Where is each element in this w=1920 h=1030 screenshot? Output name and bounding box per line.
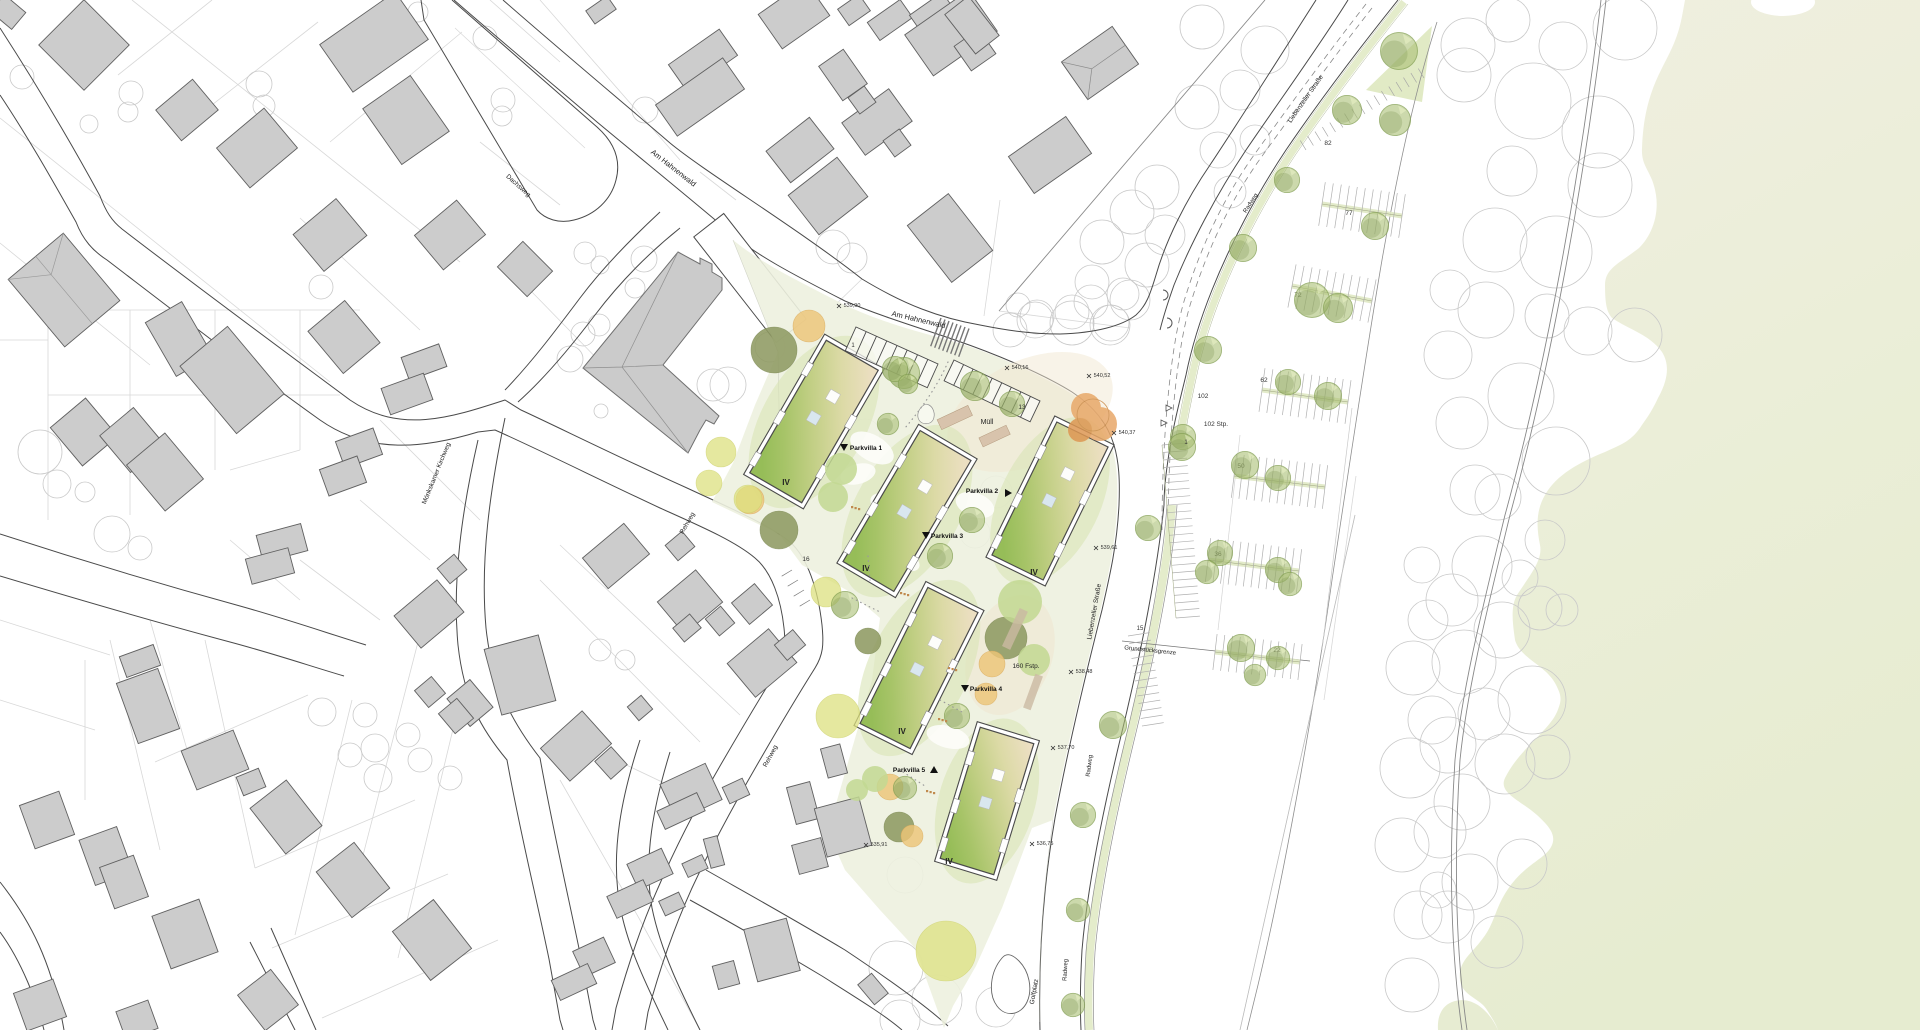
svg-text:Parkvilla 2: Parkvilla 2 (966, 488, 999, 495)
svg-text:538,48: 538,48 (1076, 669, 1093, 675)
svg-text:Parkvilla 4: Parkvilla 4 (970, 686, 1003, 693)
svg-text:102: 102 (1198, 393, 1209, 400)
svg-text:16: 16 (802, 556, 810, 563)
svg-text:102 Stp.: 102 Stp. (1204, 421, 1228, 428)
svg-text:62: 62 (1260, 377, 1268, 384)
svg-text:Parkvilla 5: Parkvilla 5 (893, 767, 926, 774)
svg-text:Parkvilla 3: Parkvilla 3 (931, 533, 964, 540)
svg-text:IV: IV (945, 857, 953, 866)
svg-text:IV: IV (1030, 568, 1038, 577)
svg-text:82: 82 (1324, 140, 1332, 147)
svg-text:540,52: 540,52 (1094, 373, 1111, 379)
svg-text:77: 77 (1345, 210, 1353, 217)
svg-text:539,61: 539,61 (1101, 545, 1118, 551)
svg-text:539,90: 539,90 (844, 303, 861, 309)
svg-text:540,37: 540,37 (1119, 430, 1136, 436)
svg-text:Müll: Müll (981, 419, 994, 426)
svg-text:535,91: 535,91 (871, 842, 888, 848)
svg-text:13: 13 (1018, 404, 1026, 411)
svg-text:536,75: 536,75 (1037, 841, 1054, 847)
svg-text:160 Fstp.: 160 Fstp. (1012, 663, 1039, 670)
svg-text:Radweg: Radweg (1062, 959, 1069, 981)
svg-text:15: 15 (1137, 626, 1144, 632)
svg-text:540,16: 540,16 (1012, 365, 1029, 371)
svg-text:Parkvilla 1: Parkvilla 1 (850, 445, 883, 452)
svg-text:537,70: 537,70 (1058, 745, 1075, 751)
svg-text:IV: IV (782, 478, 790, 487)
svg-text:IV: IV (898, 727, 906, 736)
